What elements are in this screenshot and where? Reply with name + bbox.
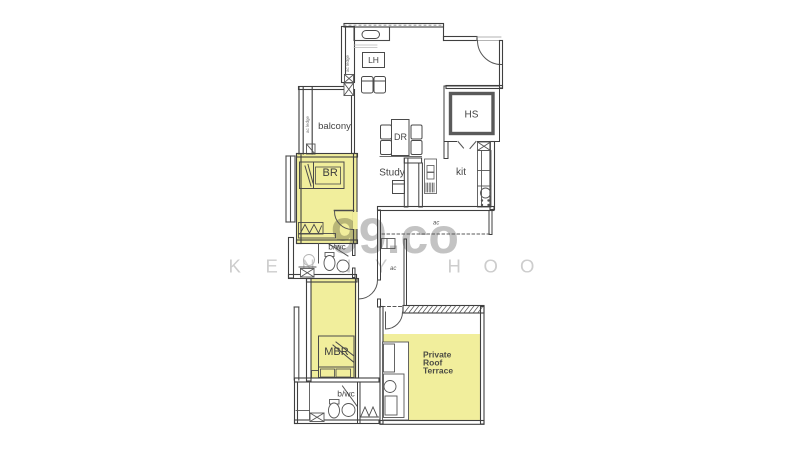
- svg-text:ac ledge: ac ledge: [305, 115, 310, 133]
- svg-text:DR: DR: [394, 132, 407, 142]
- svg-text:MBR: MBR: [324, 346, 349, 358]
- svg-text:Terrace: Terrace: [423, 366, 453, 376]
- svg-text:KENNYHOO: KENNYHOO: [229, 256, 535, 277]
- svg-text:ac: ac: [433, 221, 439, 227]
- svg-text:HS: HS: [465, 110, 479, 121]
- svg-text:b/wc: b/wc: [337, 389, 355, 399]
- svg-text:b/wc: b/wc: [328, 242, 346, 252]
- svg-text:LH: LH: [368, 55, 379, 65]
- svg-text:BR: BR: [323, 167, 338, 179]
- svg-text:kit: kit: [456, 167, 466, 178]
- svg-text:Study: Study: [379, 168, 405, 179]
- svg-text:ac: ac: [390, 266, 396, 272]
- svg-text:balcony: balcony: [318, 121, 351, 132]
- svg-text:ac ledge: ac ledge: [345, 54, 350, 72]
